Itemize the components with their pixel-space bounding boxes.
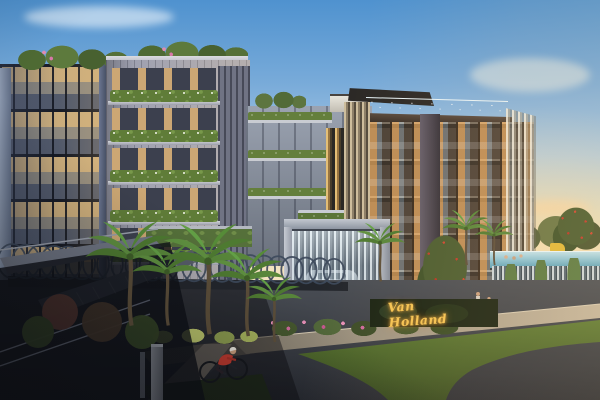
palm-tree bbox=[442, 210, 490, 265]
swimmers bbox=[504, 254, 522, 259]
development-sign: Van Holland bbox=[387, 294, 475, 328]
bollard bbox=[151, 344, 163, 400]
palm-tree bbox=[474, 220, 513, 266]
foreground-figures bbox=[0, 0, 600, 400]
rendering-canvas: Van Holland bbox=[0, 0, 600, 400]
palm-tree bbox=[355, 223, 405, 282]
palm-tree bbox=[85, 222, 175, 326]
development-sign-text: Van Holland bbox=[387, 298, 447, 330]
sign-post bbox=[140, 352, 145, 398]
palm-tree bbox=[246, 277, 302, 342]
cyclist bbox=[200, 347, 247, 382]
